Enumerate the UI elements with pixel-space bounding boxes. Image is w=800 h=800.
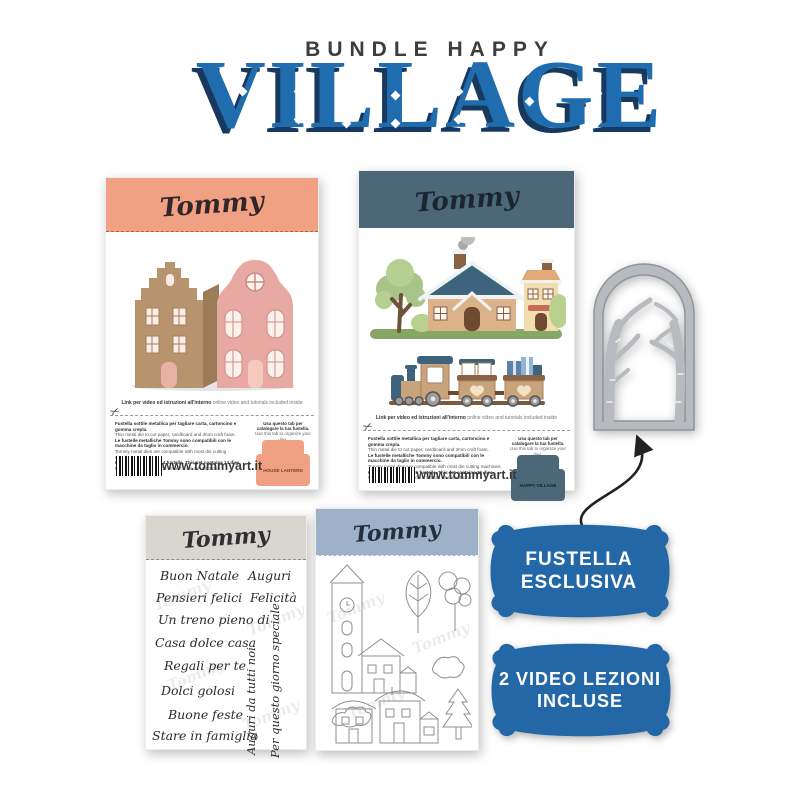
package-house-lantern: Tommy Link per vide (105, 177, 319, 490)
tommy-logo: Tommy (159, 186, 265, 223)
fineprint-line: Thin metal die to cut paper, cardboard a… (115, 432, 247, 438)
stamp-phrase: Auguri (248, 568, 291, 583)
website-url: www.tommyart.it (106, 459, 318, 473)
tab-note-it: Usa questo tab per catalogare la tua fus… (257, 421, 309, 431)
package-happy-village: Tommy (358, 170, 575, 491)
link-line-it: Link per video ed istruzioni all'interno (122, 400, 212, 406)
village-scene-art (366, 237, 566, 349)
badge-video-lezioni: 2 VIDEO LEZIONI INCLUSE (488, 636, 672, 746)
scissors-icon: ✂ (109, 406, 122, 420)
stamp-phrase: Buon Natale (160, 568, 239, 583)
stamp-set-village-art: Tommy Tommy Tommy Tommy (315, 508, 479, 751)
package-header: Tommy (106, 178, 318, 232)
badge-fustella-esclusiva: FUSTELLA ESCLUSIVA (488, 517, 670, 627)
tab-note: Usa questo tab per catalogare la tua fus… (509, 436, 567, 457)
fineprint-line: Thin metal die to cut paper, cardboard a… (368, 447, 502, 453)
bundle-promo-page: BUNDLE HAPPY VILLAGE Tommy (0, 0, 800, 800)
tommy-logo: Tommy (414, 181, 520, 218)
video-link-line: Link per video ed istruzioni all'interno… (106, 400, 318, 406)
package-header: Tommy (359, 171, 574, 228)
stamp-phrase: Stare in famiglia (152, 728, 258, 743)
badge-line: ESCLUSIVA (521, 572, 637, 595)
badge-line: 2 VIDEO LEZIONI (499, 669, 661, 691)
stamp-phrase-vertical: Per questo giorno speciale (268, 603, 282, 758)
cut-line (363, 430, 570, 431)
stamp-phrase: Pensieri felici (156, 590, 242, 605)
stamp-set-sentiments: Tommy Tommy Tommy Tommy Tommy Buon Natal… (145, 515, 307, 750)
page-title: VILLAGE (60, 46, 800, 143)
tommy-logo: Tommy (181, 521, 270, 553)
train-art (387, 345, 547, 411)
exclusive-die-image (592, 262, 696, 437)
badge-line: FUSTELLA (525, 549, 632, 572)
fineprint-line: Le fustelle metalliche Tommy sono compat… (115, 438, 247, 449)
tab-note: Usa questo tab per catalogare la tua fus… (254, 421, 312, 442)
video-link-line: Link per video ed istruzioni all'interno… (359, 415, 574, 421)
website-url: www.tommyart.it (359, 468, 574, 482)
stamp-phrase-vertical: Auguri da tutti noi (244, 647, 258, 755)
package-header: Tommy (316, 509, 478, 556)
fineprint-line: Fustella sottile metallica per tagliare … (115, 421, 247, 432)
tab-note-it: Usa questo tab per catalogare la tua fus… (512, 436, 564, 446)
tab-label: HAPPY VILLAGE (520, 483, 557, 488)
scissors-icon: ✂ (362, 421, 375, 435)
house-lantern-photo (117, 240, 307, 392)
line-art-stamps (322, 561, 472, 746)
link-line-it: Link per video ed istruzioni all'interno (376, 415, 466, 421)
package-header: Tommy (146, 516, 306, 560)
fineprint-line: Le fustelle metalliche Tommy sono compat… (368, 453, 502, 464)
stamp-phrase: Buone feste (168, 707, 243, 722)
link-line-en: online video and tutorials included insi… (213, 400, 303, 406)
link-line-en: online video and tutorials included insi… (467, 415, 557, 421)
tommy-logo: Tommy (352, 516, 441, 548)
badge-line: INCLUSE (537, 691, 623, 713)
cut-line (110, 415, 314, 416)
fineprint-line: Fustella sottile metallica per tagliare … (368, 436, 502, 447)
stamp-phrase: Un treno pieno di (158, 612, 269, 627)
stamp-phrase: Casa dolce casa (155, 635, 256, 650)
stamp-phrase: Dolci golosi (161, 683, 235, 698)
stamp-phrase: Regali per te (164, 658, 246, 673)
